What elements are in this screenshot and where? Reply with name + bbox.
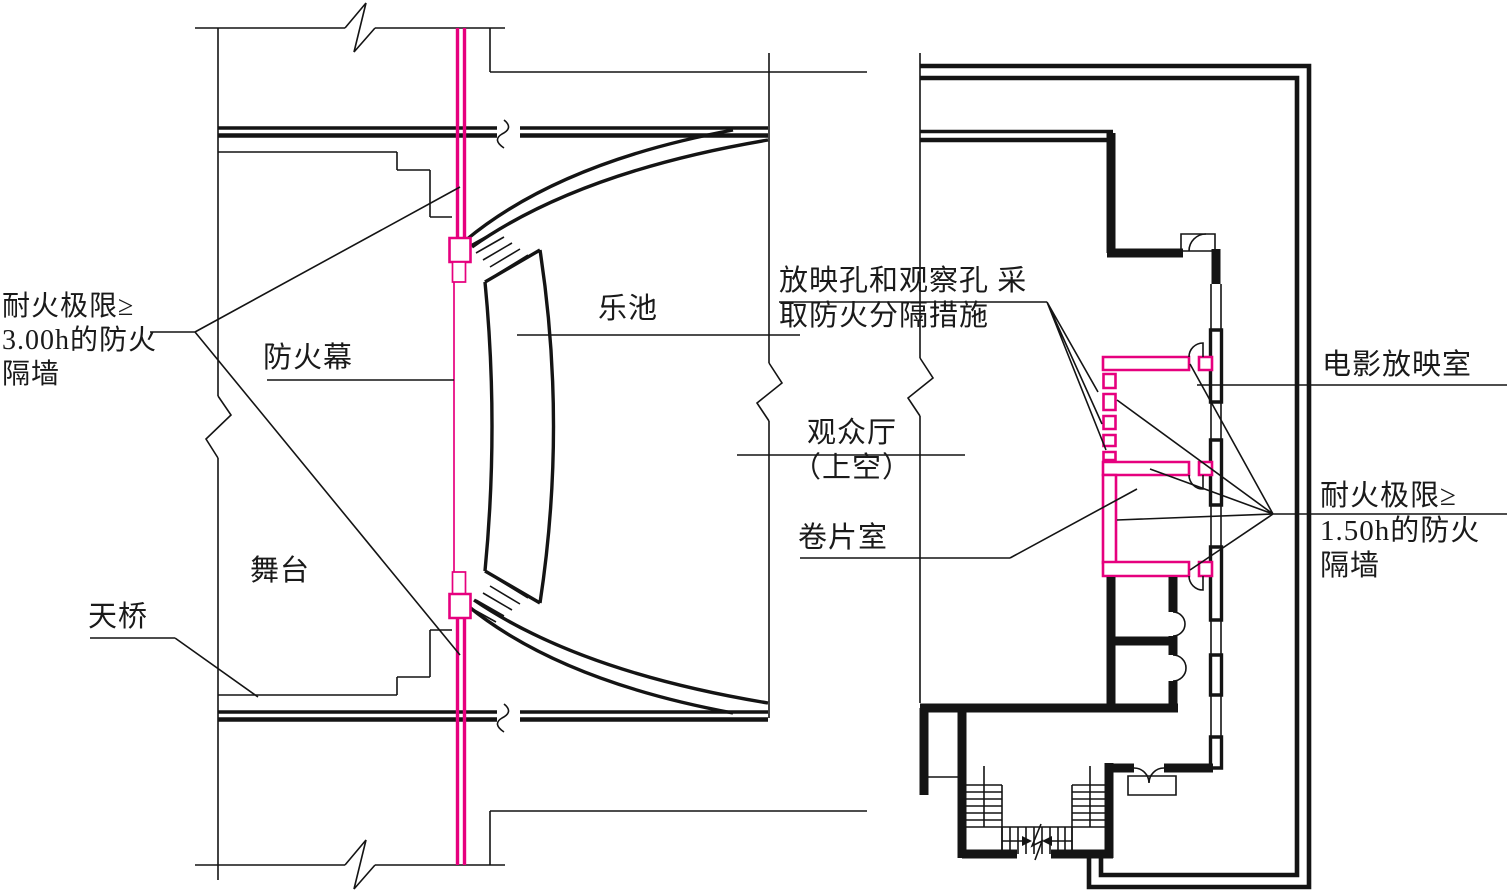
- label-catwalk: 天桥: [88, 600, 148, 635]
- fire-wall-15h-line3: 隔墙: [1320, 550, 1380, 582]
- label-fire-wall-3h: 耐火极限≥3.00h的防火隔墙: [2, 290, 157, 392]
- orchestra-pit-outline: [485, 250, 554, 603]
- audience-hall-line2: （上空）: [792, 452, 912, 484]
- projection-holes-line2: 取防火分隔措施: [779, 300, 989, 332]
- label-rewind-room: 卷片室: [798, 521, 888, 556]
- label-fire-curtain: 防火幕: [263, 341, 353, 376]
- service-rooms: [920, 577, 1186, 708]
- label-audience-hall: 观众厅（上空）: [737, 416, 967, 486]
- fire-wall-3h-line1: 耐火极限≥: [2, 291, 134, 322]
- fire-wall-15h-line1: 耐火极限≥: [1320, 480, 1457, 512]
- label-fire-wall-15h: 耐火极限≥1.50h的防火隔墙: [1320, 479, 1480, 584]
- audience-hall-line1: 观众厅: [807, 417, 897, 449]
- section-cut-lines: [757, 53, 933, 718]
- fire-curtain-line: [450, 28, 471, 865]
- proscenium-hatch: [469, 231, 528, 622]
- fire-wall-15h-line2: 1.50h的防火: [1320, 515, 1480, 547]
- fire-wall-3h-line2: 3.00h的防火: [2, 325, 157, 356]
- theatre-fire-separation-diagram: 耐火极限≥3.00h的防火隔墙 防火幕 乐池 舞台 天桥 观众厅（上空） 放映孔…: [0, 0, 1507, 893]
- label-projection-room: 电影放映室: [1322, 348, 1472, 383]
- label-projection-holes: 放映孔和观察孔 采取防火分隔措施: [779, 264, 1027, 334]
- label-stage: 舞台: [250, 554, 310, 589]
- stair-and-entrance: [920, 708, 1213, 860]
- projection-holes-line1: 放映孔和观察孔 采: [779, 265, 1027, 297]
- projection-suite-fire-walls: [1103, 343, 1212, 590]
- fire-wall-3h-line3: 隔墙: [2, 359, 60, 390]
- label-orchestra-pit: 乐池: [598, 292, 658, 327]
